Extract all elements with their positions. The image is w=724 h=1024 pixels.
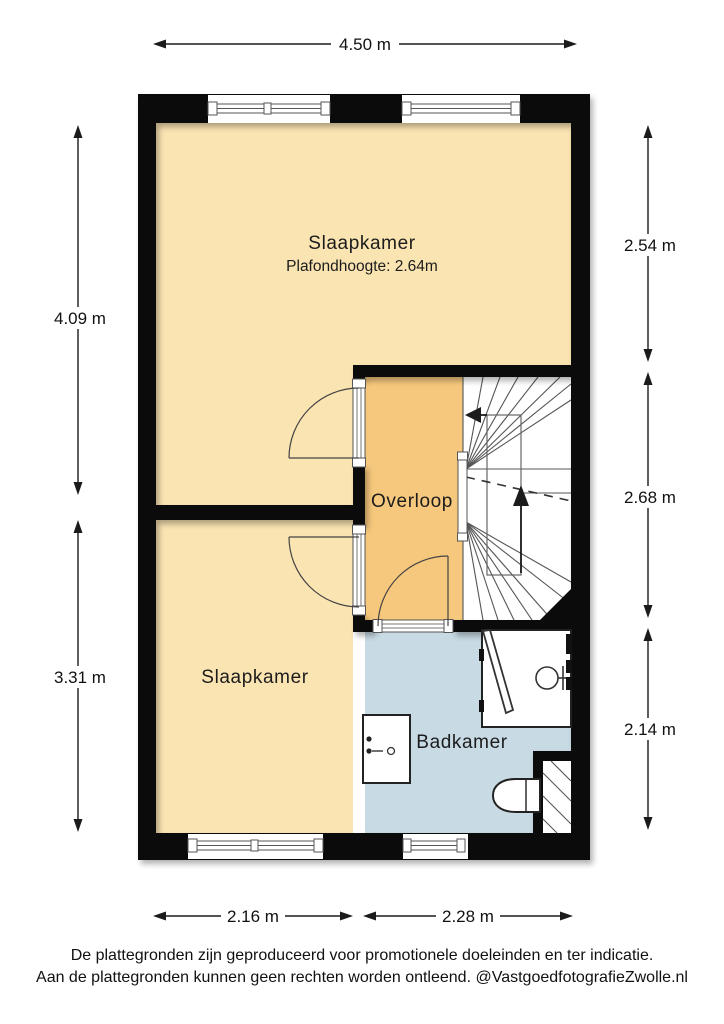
- window-bathroom: [403, 834, 468, 859]
- dim-label-left-lower: 3.31 m: [54, 668, 106, 687]
- dim-label-right-middle: 2.68 m: [624, 488, 676, 507]
- dim-label-bottom-right: 2.28 m: [442, 907, 494, 926]
- wall-right: [571, 94, 590, 860]
- dim-label-right-upper: 2.54 m: [624, 236, 676, 255]
- footer-disclaimer-line2: Aan de plattegronden kunnen geen rechten…: [36, 969, 688, 986]
- footer-disclaimer-line1: De plattegronden zijn geproduceerd voor …: [71, 947, 654, 964]
- room-label-overloop: Overloop: [371, 491, 453, 512]
- window-top-right: [402, 95, 520, 123]
- window-top-left: [208, 95, 330, 123]
- shower-icon: [479, 630, 572, 727]
- toilet-icon: [493, 779, 540, 812]
- shower-head-icon: [536, 667, 558, 689]
- bedroom-top-floor-left: [156, 123, 353, 505]
- window-bottom-bedroom: [188, 834, 323, 859]
- wall-bedroom-divider: [138, 505, 365, 520]
- dim-label-bottom-left: 2.16 m: [227, 907, 279, 926]
- dim-label-top: 4.50 m: [339, 35, 391, 54]
- wall-top: [138, 94, 590, 123]
- room-label-slaapkamer-bottom: Slaapkamer: [201, 667, 308, 688]
- room-label-slaapkamer-top: Slaapkamer: [308, 233, 415, 254]
- wall-overloop-north: [353, 365, 571, 377]
- wall-bathroom-north-left: [353, 620, 373, 632]
- wall-left: [138, 94, 156, 860]
- ceiling-height-note: Plafondhoogte: 2.64m: [286, 258, 438, 275]
- dim-label-right-lower: 2.14 m: [624, 720, 676, 739]
- room-label-badkamer: Badkamer: [416, 732, 507, 753]
- stairwell-opening: [458, 452, 468, 541]
- floorplan-drawing: Slaapkamer Plafondhoogte: 2.64m Overloop…: [0, 0, 724, 1024]
- shaft-hatched-area: [543, 761, 571, 833]
- floorplan-page: Slaapkamer Plafondhoogte: 2.64m Overloop…: [0, 0, 724, 1024]
- dim-label-left-upper: 4.09 m: [54, 309, 106, 328]
- wall-seg: [353, 365, 365, 379]
- sink-icon: [363, 715, 410, 783]
